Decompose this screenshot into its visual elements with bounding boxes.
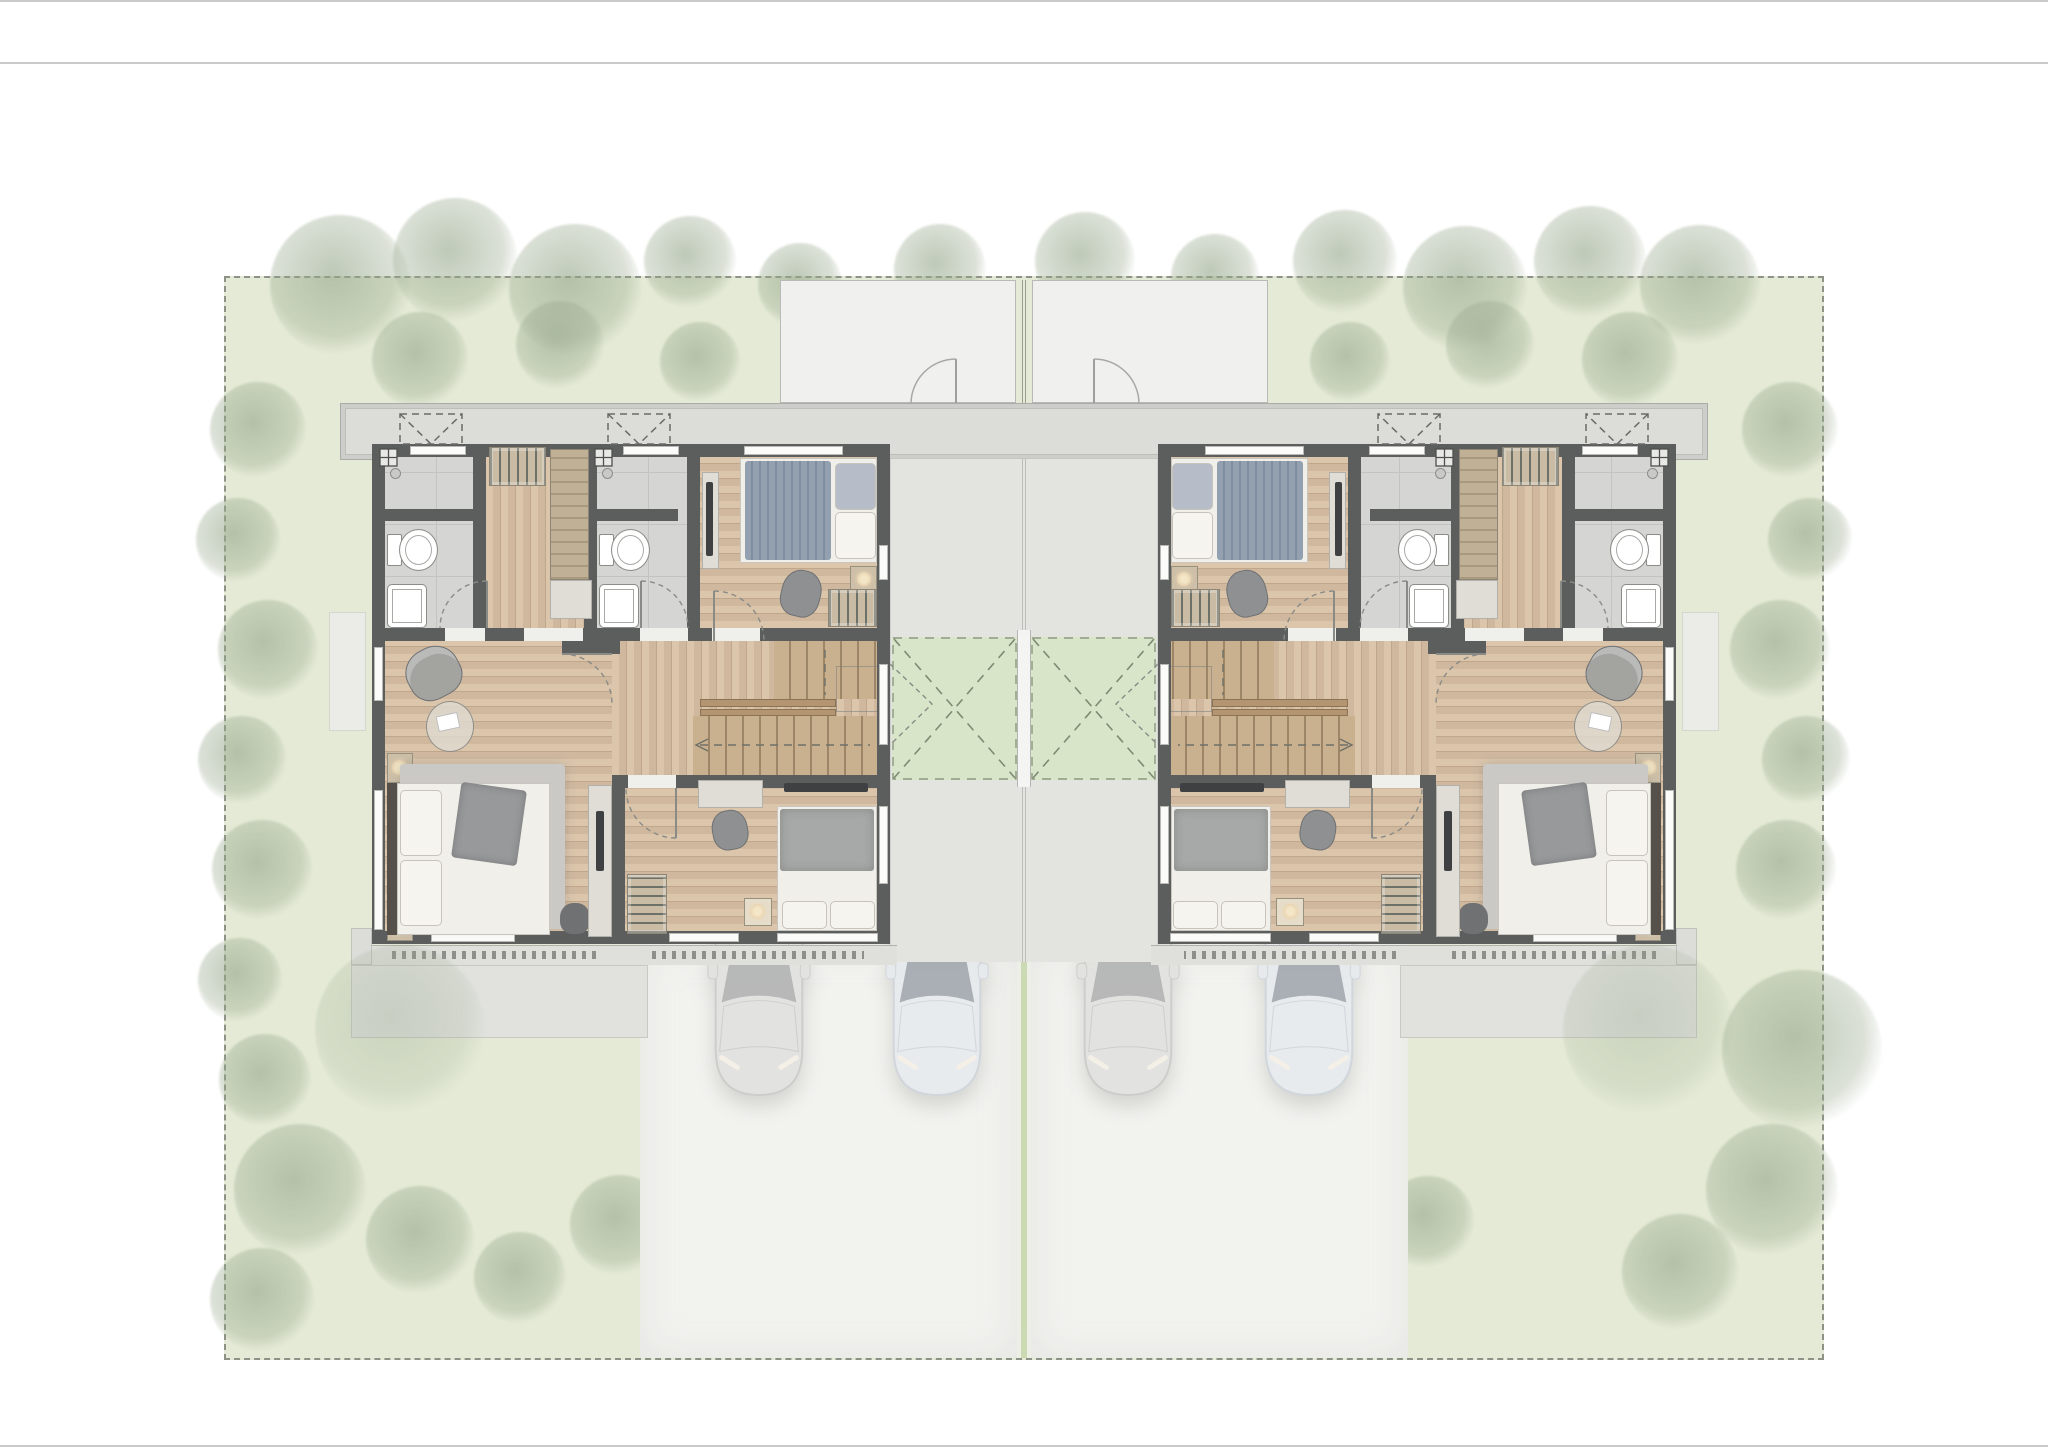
- tree-icon: [474, 1232, 566, 1324]
- tree-icon: [1310, 322, 1390, 402]
- tree-icon: [198, 938, 282, 1022]
- tree-icon: [1722, 970, 1882, 1130]
- tree-icon: [1293, 210, 1397, 314]
- ghost-porch-right: [1032, 280, 1268, 403]
- tree-icon: [372, 312, 468, 408]
- tree-icon: [1730, 600, 1830, 700]
- tree-icon: [1563, 945, 1733, 1115]
- porch-gap-lawn: [1016, 280, 1032, 403]
- void-divider-strip: [1017, 630, 1031, 787]
- porch-door-swing-right: [1033, 281, 1269, 404]
- center-path-strip: [1017, 962, 1031, 1358]
- tree-icon: [196, 498, 280, 582]
- tree-icon: [210, 382, 306, 478]
- tree-icon: [219, 1034, 311, 1126]
- ghost-porch-left: [780, 280, 1016, 403]
- tree-icon: [212, 820, 312, 920]
- tree-icon: [1736, 820, 1836, 920]
- tree-icon: [1582, 312, 1678, 408]
- tree-icon: [644, 216, 736, 308]
- tree-icon: [1768, 498, 1852, 582]
- tree-icon: [366, 1186, 474, 1294]
- tree-icon: [234, 1124, 366, 1256]
- tree-icon: [1762, 716, 1850, 804]
- tree-icon: [516, 301, 604, 389]
- tree-icon: [1706, 1124, 1838, 1256]
- floor-plan-sheet: [0, 0, 2048, 1447]
- tree-icon: [1742, 382, 1838, 478]
- porch-door-swing-left: [781, 281, 1017, 404]
- tree-icon: [660, 322, 740, 402]
- tree-icon: [1534, 206, 1646, 318]
- tree-icon: [393, 198, 517, 322]
- sheet-header-rule: [0, 62, 2048, 64]
- tree-icon: [1446, 301, 1534, 389]
- tree-icon: [315, 945, 485, 1115]
- tree-icon: [198, 716, 286, 804]
- tree-icon: [210, 1248, 314, 1352]
- center-path-green-line: [1021, 962, 1027, 1358]
- tree-icon: [218, 600, 318, 700]
- sheet-top-rule: [0, 0, 2048, 2]
